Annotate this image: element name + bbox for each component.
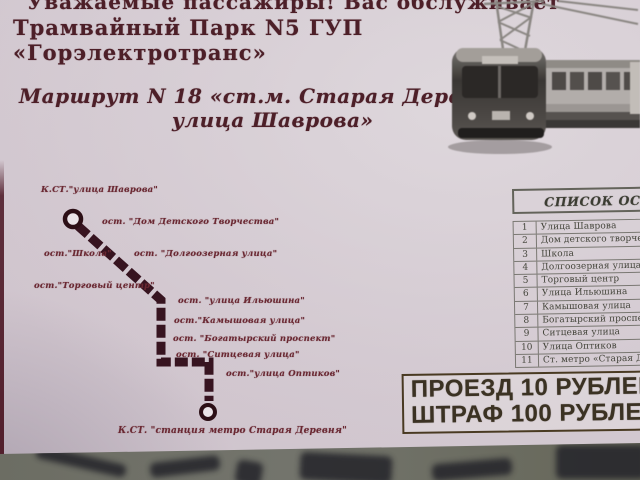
map-stop-label: К.СТ. "станция метро Старая Деревня" xyxy=(118,426,347,436)
surface-mark xyxy=(431,458,512,480)
map-stop-label: ост."улица Оптиков" xyxy=(226,369,340,379)
map-stop-label: ост."Торговый центр" xyxy=(34,281,155,291)
surface-mark xyxy=(234,459,264,480)
fare-box: ПРОЕЗД 10 РУБЛЕЙ ШТРАФ 100 РУБЛЕЙ xyxy=(402,370,640,434)
surface-mark xyxy=(299,452,392,480)
map-stop-label: К.СТ."улица Шаврова" xyxy=(41,185,158,195)
stops-table-title: СПИСОК ОСТАНОВОК xyxy=(512,185,640,214)
terminal-circle-staraya-derevnya xyxy=(201,405,215,419)
map-stop-label: ост."Камышовая улица" xyxy=(174,316,305,326)
map-stop-label: ост. "улица Ильюшина" xyxy=(178,296,305,306)
table-row: 11Ст. метро «Старая Деревня» xyxy=(516,351,640,368)
map-stop-label: ост. "Долгоозерная улица" xyxy=(134,249,277,259)
route-sheet-photo: Уважаемые пассажиры! Вас обслуживает Тра… xyxy=(0,0,640,480)
map-stop-label: ост. "Ситцевая улица" xyxy=(176,350,300,360)
fine-line: ШТРАФ 100 РУБЛЕЙ xyxy=(411,399,640,428)
terminal-circle-shavrova xyxy=(65,211,81,227)
map-stop-label: ост."Школа" xyxy=(44,249,112,259)
map-stop-label: ост. "Богатырский проспект" xyxy=(173,334,335,344)
map-stop-label: ост. "Дом Детского Творчества" xyxy=(102,217,279,227)
surface-mark xyxy=(149,455,220,478)
page-edge-stripe xyxy=(0,160,4,456)
surface-mark xyxy=(556,445,640,479)
stops-table: СПИСОК ОСТАНОВОК 1Улица Шаврова 2Дом дет… xyxy=(512,185,640,368)
stops-table-rows: 1Улица Шаврова 2Дом детского творчества … xyxy=(513,217,640,368)
